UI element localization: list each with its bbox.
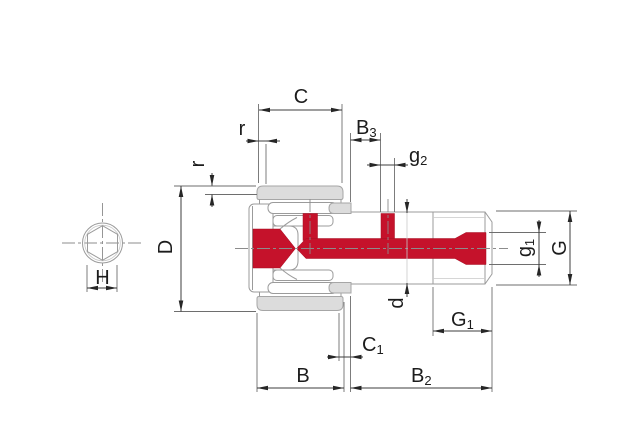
- d-outer-arrow-bottom: [179, 301, 184, 312]
- outer-ring-top-band: [257, 186, 343, 200]
- c-arrow-left: [259, 108, 270, 113]
- section-view: [235, 186, 508, 311]
- technical-drawing-canvas: H: [0, 0, 640, 440]
- dim-label-r-side: r: [187, 160, 209, 167]
- cam-follower-drawing: H: [0, 0, 640, 440]
- dim-label-d-stud: d: [386, 297, 408, 308]
- dim-label-g2: g2: [409, 145, 427, 168]
- needle-roller-top: [268, 203, 337, 214]
- dim-label-h: H: [95, 267, 109, 289]
- inner-rib-bottom: [273, 270, 333, 281]
- g2-arrow-right: [395, 163, 406, 168]
- hex-end-view: H: [62, 203, 142, 292]
- dim-label-g1-len: G1: [451, 309, 474, 332]
- b2-arrow-left: [351, 386, 362, 391]
- r-side-arrow-top: [210, 175, 215, 186]
- outer-ring-bottom-band: [257, 297, 343, 311]
- d-stud-arrow-bottom: [405, 283, 410, 294]
- d-outer-arrow-top: [179, 186, 184, 197]
- dim-label-b2: B2: [411, 365, 432, 388]
- dim-label-b3: B3: [356, 117, 377, 140]
- dim-label-d-outer: D: [155, 240, 177, 254]
- side-plate-bottom: [329, 283, 351, 294]
- c-arrow-right: [331, 108, 342, 113]
- needle-roller-bottom: [268, 283, 337, 294]
- g1-len-arrow-right: [481, 329, 492, 334]
- b-arrow-left: [257, 386, 268, 391]
- c1-arrow-left: [328, 355, 339, 360]
- dim-label-g-thread: G: [549, 240, 571, 256]
- dim-label-b: B: [296, 365, 309, 387]
- r-top-arrow-left: [248, 139, 259, 144]
- side-plate-top: [329, 203, 351, 214]
- dim-label-g1: g1: [514, 239, 537, 257]
- g1-len-arrow-left: [433, 329, 444, 334]
- dim-label-r-top: r: [239, 118, 246, 140]
- g1-arrow-bottom: [537, 265, 542, 276]
- b2-arrow-right: [481, 386, 492, 391]
- r-side-arrow-bottom: [210, 195, 215, 206]
- g-thread-arrow-bottom: [568, 274, 573, 285]
- g-thread-arrow-top: [568, 211, 573, 222]
- g1-arrow-top: [537, 222, 542, 233]
- dim-label-c1: C1: [362, 334, 384, 357]
- r-top-arrow-right: [266, 139, 277, 144]
- d-stud-arrow-top: [405, 202, 410, 213]
- b-arrow-right: [333, 386, 344, 391]
- dim-label-c: C: [294, 86, 308, 108]
- g2-arrow-left: [370, 163, 381, 168]
- c1-arrow-right: [351, 355, 362, 360]
